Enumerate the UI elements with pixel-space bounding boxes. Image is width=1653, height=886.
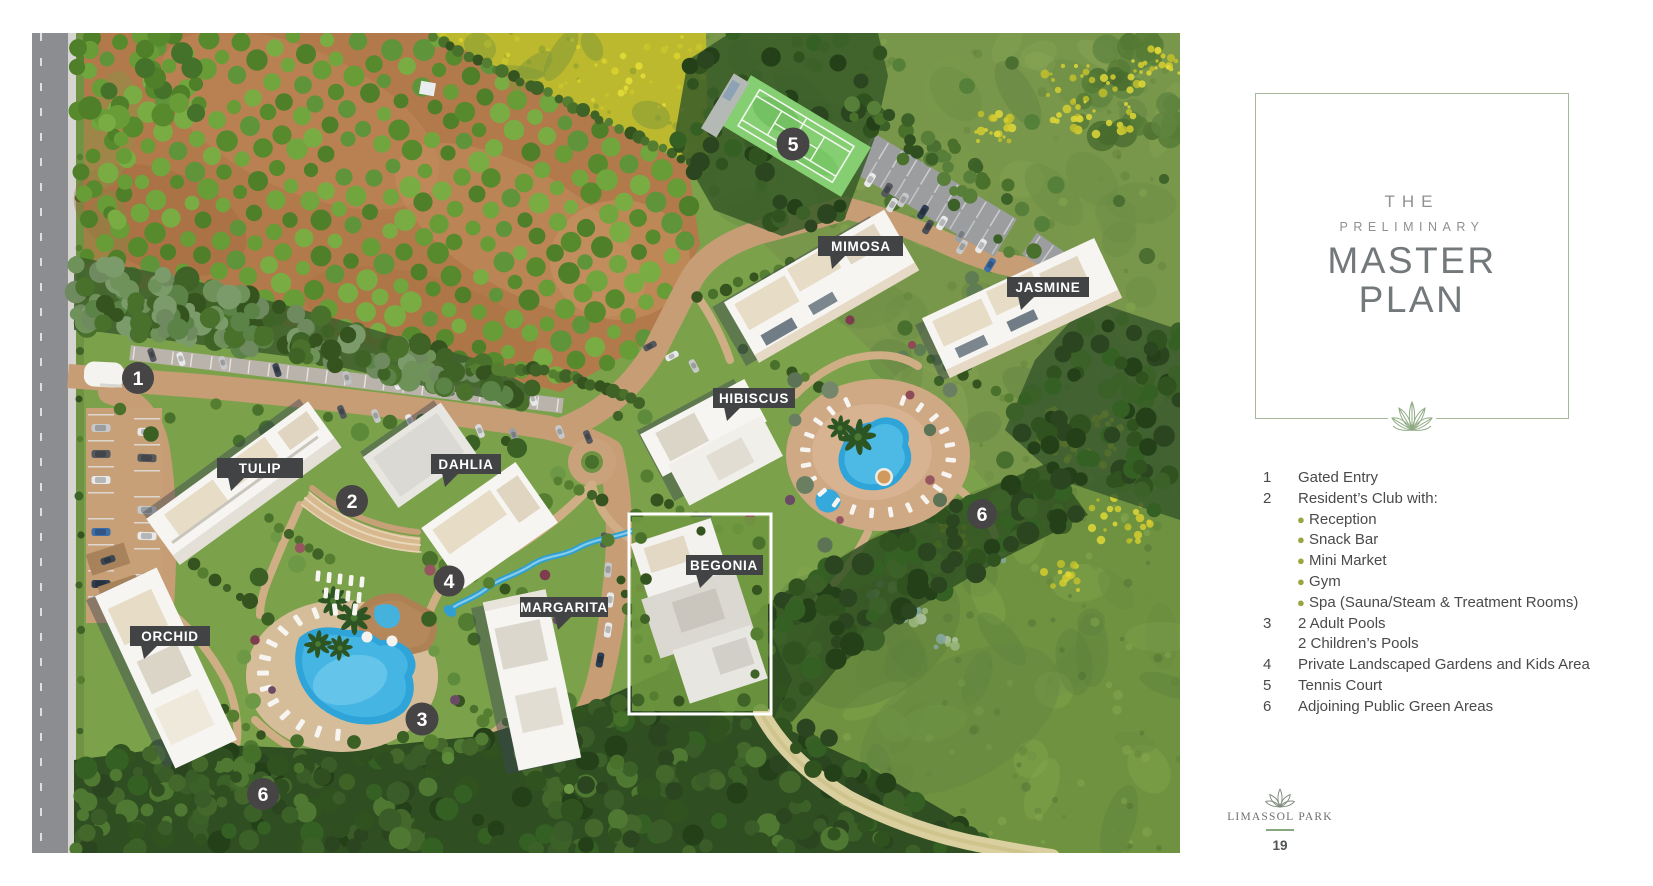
svg-text:1: 1 [133, 368, 144, 390]
svg-text:DAHLIA: DAHLIA [438, 457, 493, 472]
svg-text:4: 4 [444, 571, 455, 593]
svg-text:MARGARITA: MARGARITA [520, 600, 608, 615]
svg-text:6: 6 [258, 784, 269, 806]
svg-text:ORCHID: ORCHID [141, 629, 198, 644]
svg-text:6: 6 [977, 504, 988, 526]
svg-text:5: 5 [788, 134, 799, 156]
svg-text:BEGONIA: BEGONIA [690, 558, 758, 573]
svg-text:3: 3 [417, 709, 428, 731]
svg-text:TULIP: TULIP [239, 461, 282, 476]
svg-text:MIMOSA: MIMOSA [831, 239, 891, 254]
svg-text:JASMINE: JASMINE [1016, 280, 1081, 295]
svg-text:HIBISCUS: HIBISCUS [719, 391, 789, 406]
svg-text:2: 2 [347, 491, 358, 513]
